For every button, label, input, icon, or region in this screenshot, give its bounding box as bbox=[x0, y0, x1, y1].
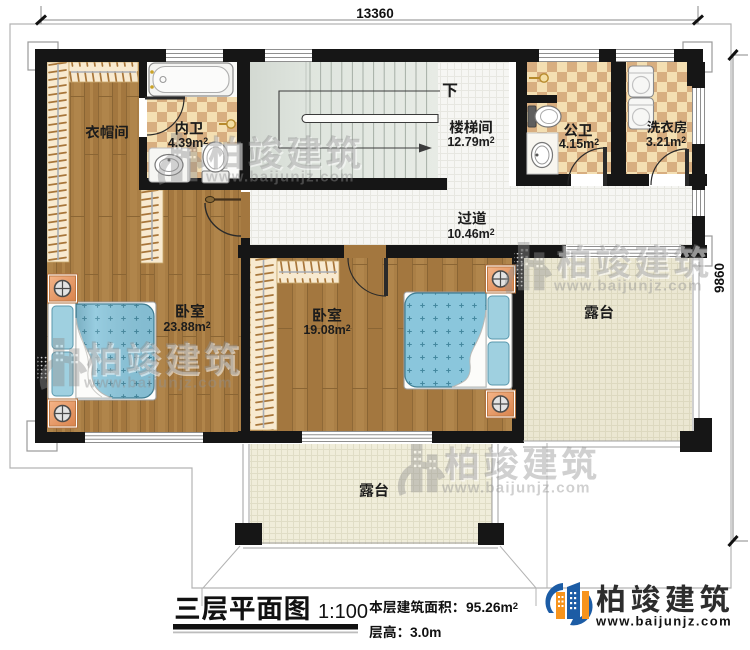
svg-text:10.46m2: 10.46m2 bbox=[447, 227, 494, 241]
svg-text:9860: 9860 bbox=[712, 263, 727, 293]
svg-text:4.15m2: 4.15m2 bbox=[559, 137, 599, 151]
svg-text:4.39m2: 4.39m2 bbox=[168, 136, 208, 150]
svg-text:3.0m: 3.0m bbox=[410, 625, 441, 640]
svg-text:95.26m2: 95.26m2 bbox=[466, 600, 518, 615]
svg-text:12.79m2: 12.79m2 bbox=[447, 135, 494, 149]
svg-text:www.baijunjz.com: www.baijunjz.com bbox=[441, 480, 591, 497]
svg-text:19.08m2: 19.08m2 bbox=[303, 323, 350, 337]
svg-text:www.baijunjz.com: www.baijunjz.com bbox=[205, 169, 355, 186]
svg-text:www.baijunjz.com: www.baijunjz.com bbox=[595, 614, 732, 629]
svg-text:1:100: 1:100 bbox=[318, 601, 368, 623]
svg-text:23.88m2: 23.88m2 bbox=[163, 320, 210, 334]
svg-text:3.21m2: 3.21m2 bbox=[646, 135, 686, 149]
svg-text:13360: 13360 bbox=[356, 6, 394, 21]
svg-text:www.baijunjz.com: www.baijunjz.com bbox=[83, 375, 233, 392]
svg-text:www.baijunjz.com: www.baijunjz.com bbox=[553, 278, 703, 295]
